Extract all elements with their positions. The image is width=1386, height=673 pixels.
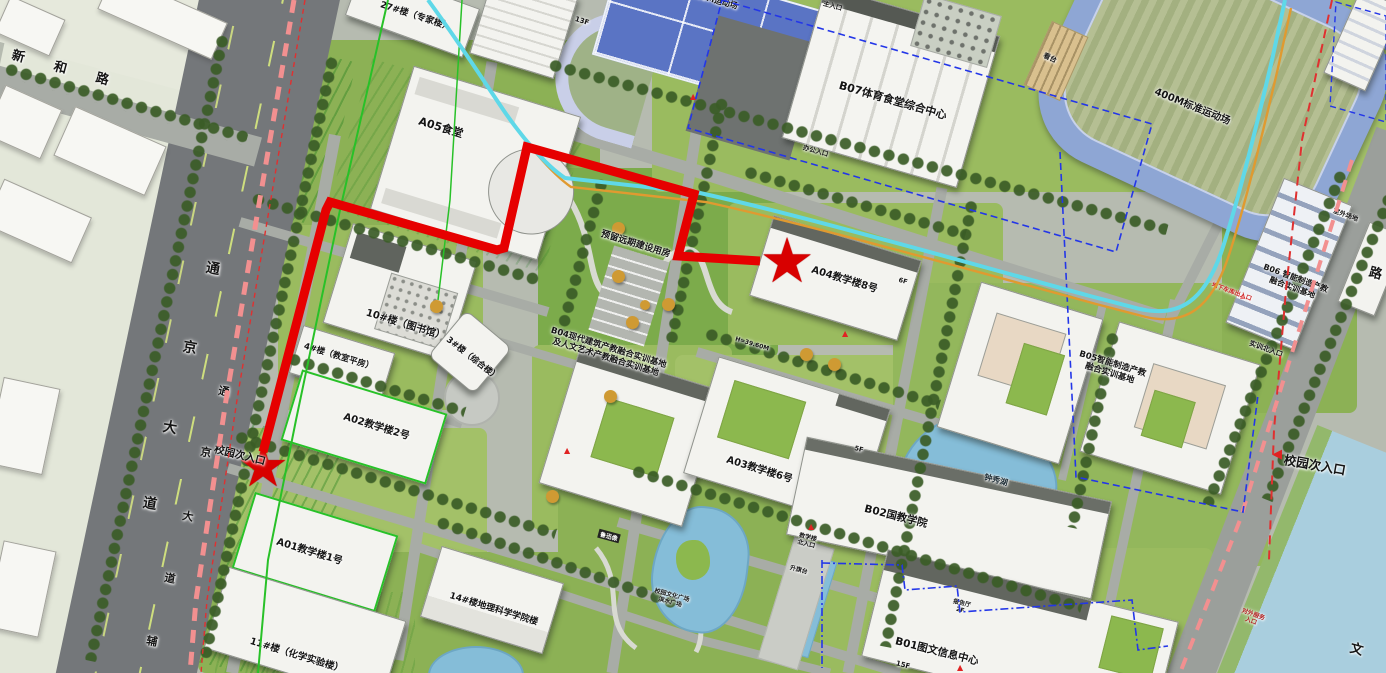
- blue-dash-b01-top: [822, 563, 1168, 650]
- blue-dash-topright: [1330, 2, 1386, 122]
- green-boundary-1: [258, 0, 388, 673]
- salmon-dash-east-road: [1180, 160, 1352, 673]
- map-linework: [0, 0, 1386, 673]
- route-line: [263, 147, 760, 452]
- red-dash-west-outer: [190, 0, 294, 673]
- blue-dash-b05: [1060, 152, 1258, 512]
- stream-orange-path: [434, 8, 1291, 319]
- red-dash-east: [1269, 0, 1332, 560]
- campus-master-plan-map: ★ ★ ▲ ▲ ▲ ▲ ▲ ▲ ◀ 新 和 路 通 京 大 道 通 京 大 道 …: [0, 0, 1386, 673]
